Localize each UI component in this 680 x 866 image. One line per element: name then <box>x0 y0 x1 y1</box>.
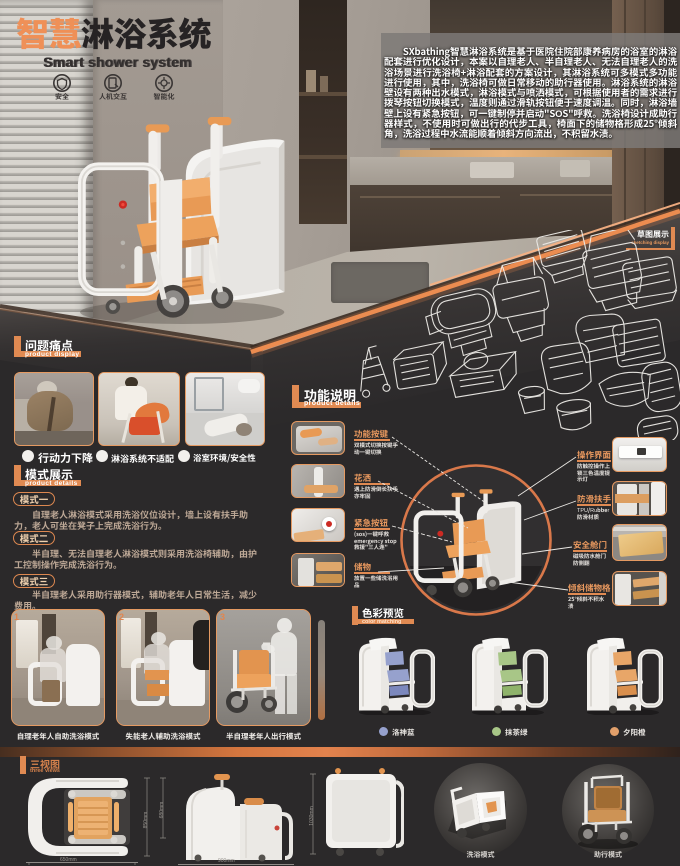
svg-text:680mm: 680mm <box>159 802 165 819</box>
svg-text:1030mm: 1030mm <box>309 806 315 825</box>
svg-text:850mm: 850mm <box>143 812 149 829</box>
